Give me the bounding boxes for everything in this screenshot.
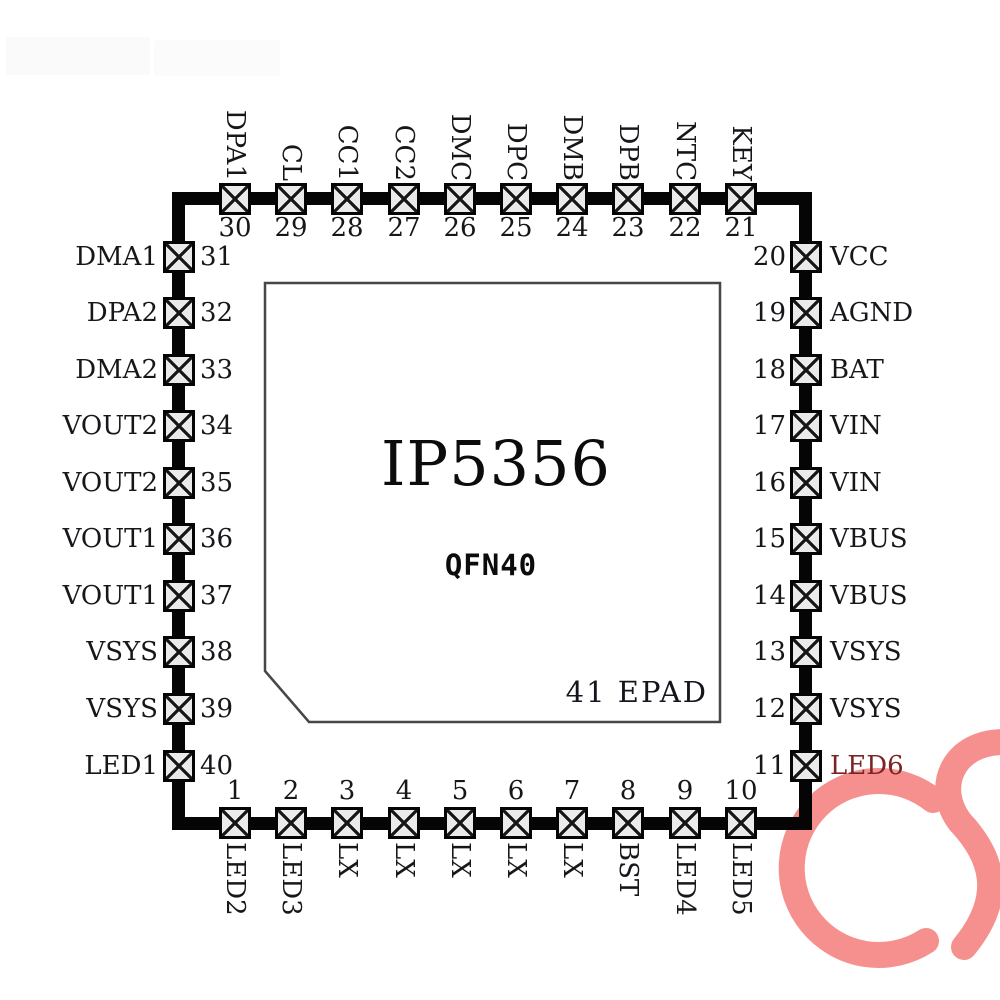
- pin-label: CC2: [391, 125, 417, 181]
- pin-square: [163, 467, 195, 499]
- pin-square: [790, 693, 822, 725]
- pin-number: 25: [491, 213, 541, 243]
- pin-square: [163, 523, 195, 555]
- pin-number: 36: [200, 524, 245, 554]
- pin-number: 38: [200, 637, 245, 667]
- pin-number: 21: [716, 213, 766, 243]
- pin-label: LED5: [728, 842, 754, 916]
- pin-square: [331, 183, 363, 215]
- pin-square: [163, 241, 195, 273]
- pin-number: 20: [741, 242, 786, 272]
- pin-number: 14: [741, 581, 786, 611]
- pin-square: [219, 183, 251, 215]
- pin-label: VOUT1: [16, 581, 158, 611]
- pin-number: 18: [741, 355, 786, 385]
- pin-square: [790, 410, 822, 442]
- pin-number: 17: [741, 411, 786, 441]
- pin-label: BAT: [830, 355, 884, 385]
- pin-label: VSYS: [16, 637, 158, 667]
- pin-number: 32: [200, 298, 245, 328]
- pin-square: [790, 580, 822, 612]
- pin-square: [275, 183, 307, 215]
- pin-square: [790, 241, 822, 273]
- pin-label: AGND: [830, 298, 913, 328]
- pin-number: 16: [741, 468, 786, 498]
- pin-square: [790, 636, 822, 668]
- pin-number: 26: [435, 213, 485, 243]
- pin-label: BST: [615, 842, 641, 896]
- pin-label: VSYS: [830, 694, 902, 724]
- pin-number: 24: [547, 213, 597, 243]
- pin-label: VBUS: [830, 581, 908, 611]
- pin-square: [556, 183, 588, 215]
- pin-number: 2: [266, 776, 316, 806]
- pin-label: KEY: [728, 125, 754, 181]
- pin-label: LX: [559, 842, 585, 878]
- pin-label: LED4: [672, 842, 698, 916]
- pin-number: 31: [200, 242, 245, 272]
- pin-label: VIN: [830, 411, 882, 441]
- pin-square: [331, 807, 363, 839]
- pin-square: [500, 183, 532, 215]
- pin-number: 34: [200, 411, 245, 441]
- pin-square: [163, 297, 195, 329]
- pin-square: [790, 297, 822, 329]
- pin-square: [444, 183, 476, 215]
- pin-number: 7: [547, 776, 597, 806]
- part-number: IP5356: [296, 430, 696, 498]
- pin-label: VOUT1: [16, 524, 158, 554]
- pin-label: LED2: [222, 842, 248, 916]
- pin-label: VOUT2: [16, 468, 158, 498]
- pin-label: VSYS: [830, 637, 902, 667]
- pin-square: [163, 410, 195, 442]
- pin-number: 12: [741, 694, 786, 724]
- pin-square: [612, 807, 644, 839]
- pin-square: [388, 807, 420, 839]
- pin-label: VOUT2: [16, 411, 158, 441]
- pin-label: LED1: [16, 751, 158, 781]
- pin-number: 19: [741, 298, 786, 328]
- pin-number: 13: [741, 637, 786, 667]
- pin-square: [163, 750, 195, 782]
- pin-label: DPA2: [16, 298, 158, 328]
- pin-number: 8: [603, 776, 653, 806]
- pin-number: 35: [200, 468, 245, 498]
- pin-label: DMA2: [16, 355, 158, 385]
- pin-square: [163, 354, 195, 386]
- pin-number: 37: [200, 581, 245, 611]
- pin-square: [790, 467, 822, 499]
- pin-square: [669, 807, 701, 839]
- pin-square: [163, 693, 195, 725]
- pin-number: 6: [491, 776, 541, 806]
- pin-label: CC1: [334, 125, 360, 181]
- faint-watermark: [6, 37, 150, 75]
- pin-square: [275, 807, 307, 839]
- pin-number: 29: [266, 213, 316, 243]
- pin-label: LX: [447, 842, 473, 878]
- pin-number: 9: [660, 776, 710, 806]
- pinout-diagram: IP5356 QFN40 41 EPAD 30 29 28 27 26 25 2…: [0, 0, 1000, 1000]
- pin-number: 23: [603, 213, 653, 243]
- pin-number: 15: [741, 524, 786, 554]
- pin-square: [790, 523, 822, 555]
- pin-label: VIN: [830, 468, 882, 498]
- pin-label: LED3: [278, 842, 304, 916]
- pin-square: [500, 807, 532, 839]
- pin-number: 4: [379, 776, 429, 806]
- epad-label: 41 EPAD: [480, 676, 708, 708]
- pin-label: CL: [278, 144, 304, 181]
- pin-number: 5: [435, 776, 485, 806]
- pin-label: LX: [503, 842, 529, 878]
- pin-number: 1: [210, 776, 260, 806]
- package-name: QFN40: [391, 549, 591, 581]
- pin-square: [163, 636, 195, 668]
- faint-watermark: [154, 40, 280, 76]
- pin-label: LX: [391, 842, 417, 878]
- pin-square: [725, 807, 757, 839]
- pin-number: 30: [210, 213, 260, 243]
- pin-label: LX: [334, 842, 360, 878]
- pin-label: VSYS: [16, 694, 158, 724]
- pin-number: 39: [200, 694, 245, 724]
- pin-label: VBUS: [830, 524, 908, 554]
- pin-label: VCC: [830, 242, 889, 272]
- pin-label: DMC: [447, 114, 473, 181]
- chip-outline: [172, 192, 812, 830]
- pin-label: DPB: [615, 124, 641, 181]
- pin-label: DPC: [503, 123, 529, 181]
- pin-square: [219, 807, 251, 839]
- pin-number: 3: [322, 776, 372, 806]
- pin-square: [725, 183, 757, 215]
- pin-square: [669, 183, 701, 215]
- pin-number: 22: [660, 213, 710, 243]
- pin-square: [444, 807, 476, 839]
- pin-square: [388, 183, 420, 215]
- pin-number: 27: [379, 213, 429, 243]
- pin-label: LED6: [830, 751, 904, 781]
- pin-label: NTC: [672, 121, 698, 181]
- pin-label: DPA1: [222, 110, 248, 181]
- pin-square: [790, 354, 822, 386]
- pin-square: [163, 580, 195, 612]
- pin-square: [790, 750, 822, 782]
- pin-label: DMB: [559, 114, 585, 181]
- pin-number: 10: [716, 776, 766, 806]
- pin-square: [556, 807, 588, 839]
- pin-label: DMA1: [16, 242, 158, 272]
- pin-number: 28: [322, 213, 372, 243]
- pin-number: 33: [200, 355, 245, 385]
- pin-square: [612, 183, 644, 215]
